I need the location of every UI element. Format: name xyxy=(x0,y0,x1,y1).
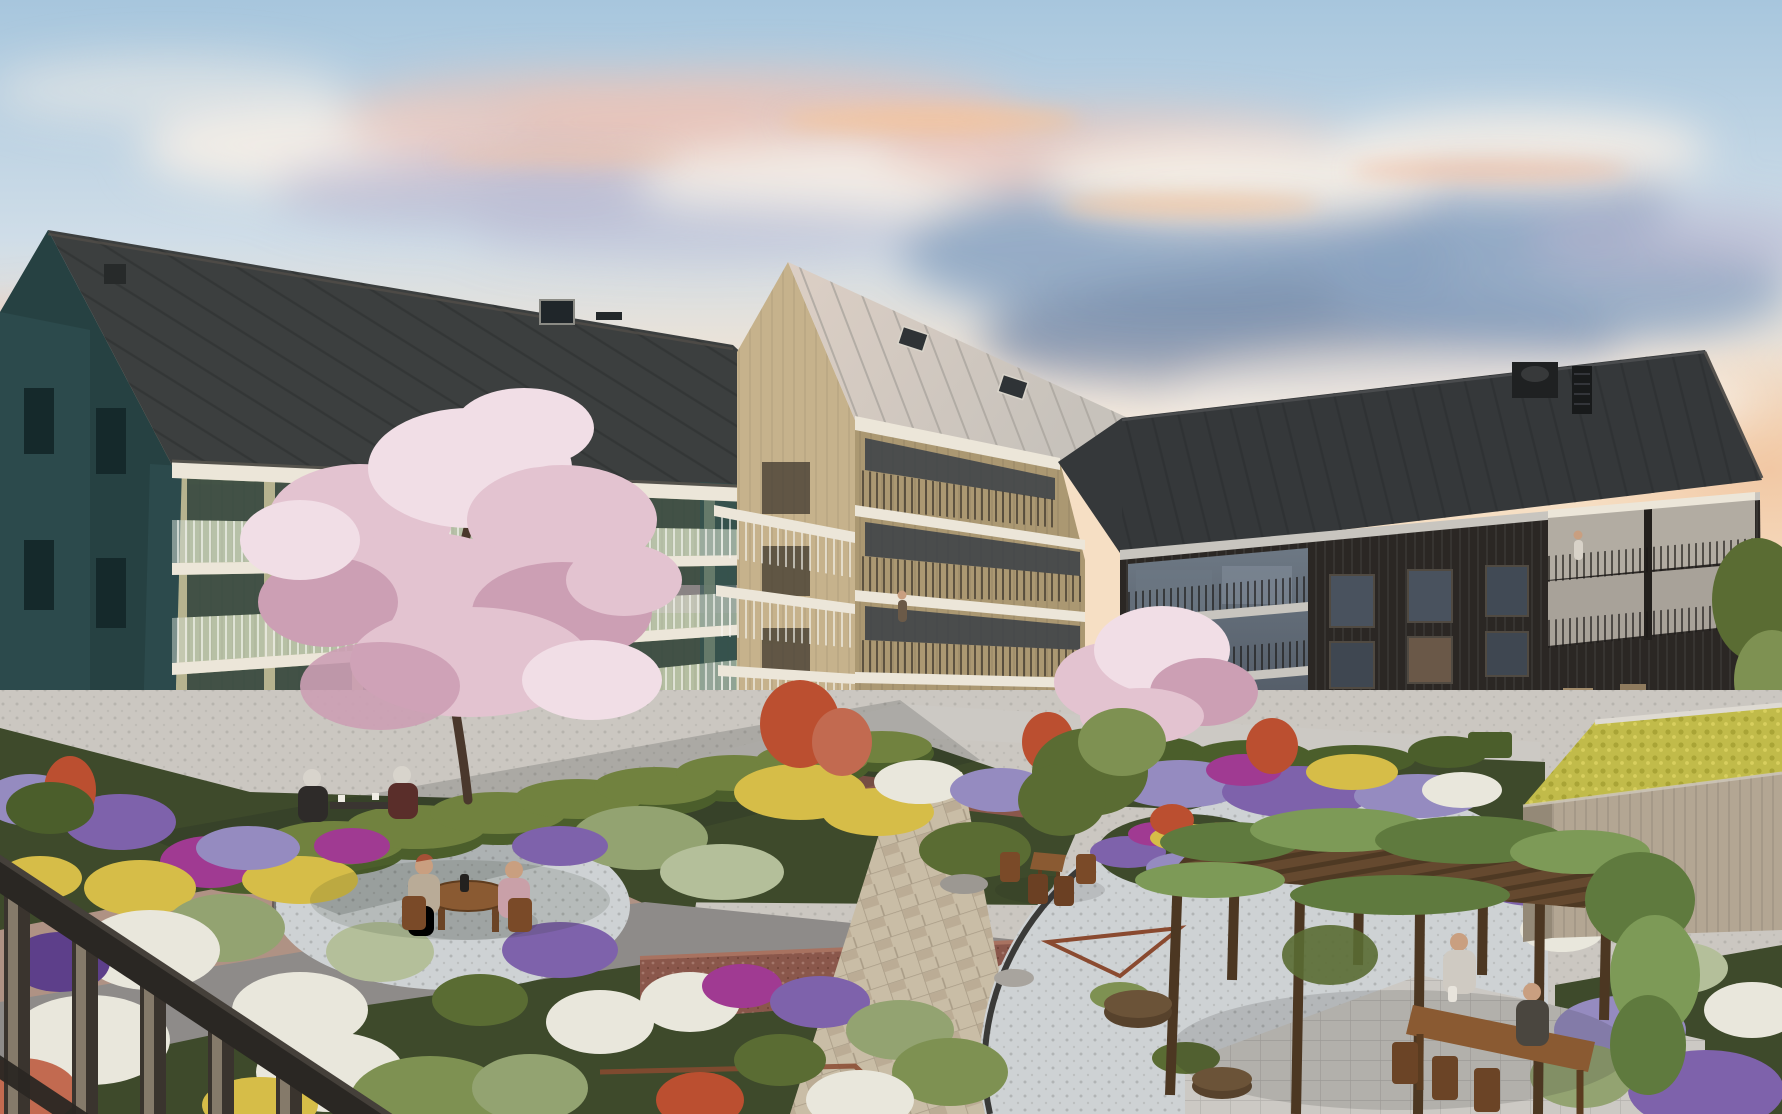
roof-vent xyxy=(104,264,126,284)
stone xyxy=(940,874,988,894)
roof-ladder xyxy=(596,312,622,320)
courtyard-rendering: Dusk architectural rendering of a timber… xyxy=(0,0,1782,1114)
rendering-stage: Dusk architectural rendering of a timber… xyxy=(0,0,1782,1114)
person-on-balcony-head xyxy=(1574,531,1583,540)
terrace-table xyxy=(330,802,394,809)
chair xyxy=(508,898,532,932)
chair xyxy=(402,896,426,930)
person-on-balcony-head xyxy=(898,591,907,600)
bistro-set xyxy=(995,852,1105,906)
roof-skylight xyxy=(540,300,574,324)
stone xyxy=(994,969,1034,987)
carafe xyxy=(1448,986,1457,1002)
thermos xyxy=(460,874,469,892)
person-on-balcony xyxy=(898,600,907,622)
shrub-by-gable xyxy=(6,782,94,834)
bistro-table xyxy=(1030,852,1066,872)
person-on-balcony xyxy=(1574,540,1583,560)
